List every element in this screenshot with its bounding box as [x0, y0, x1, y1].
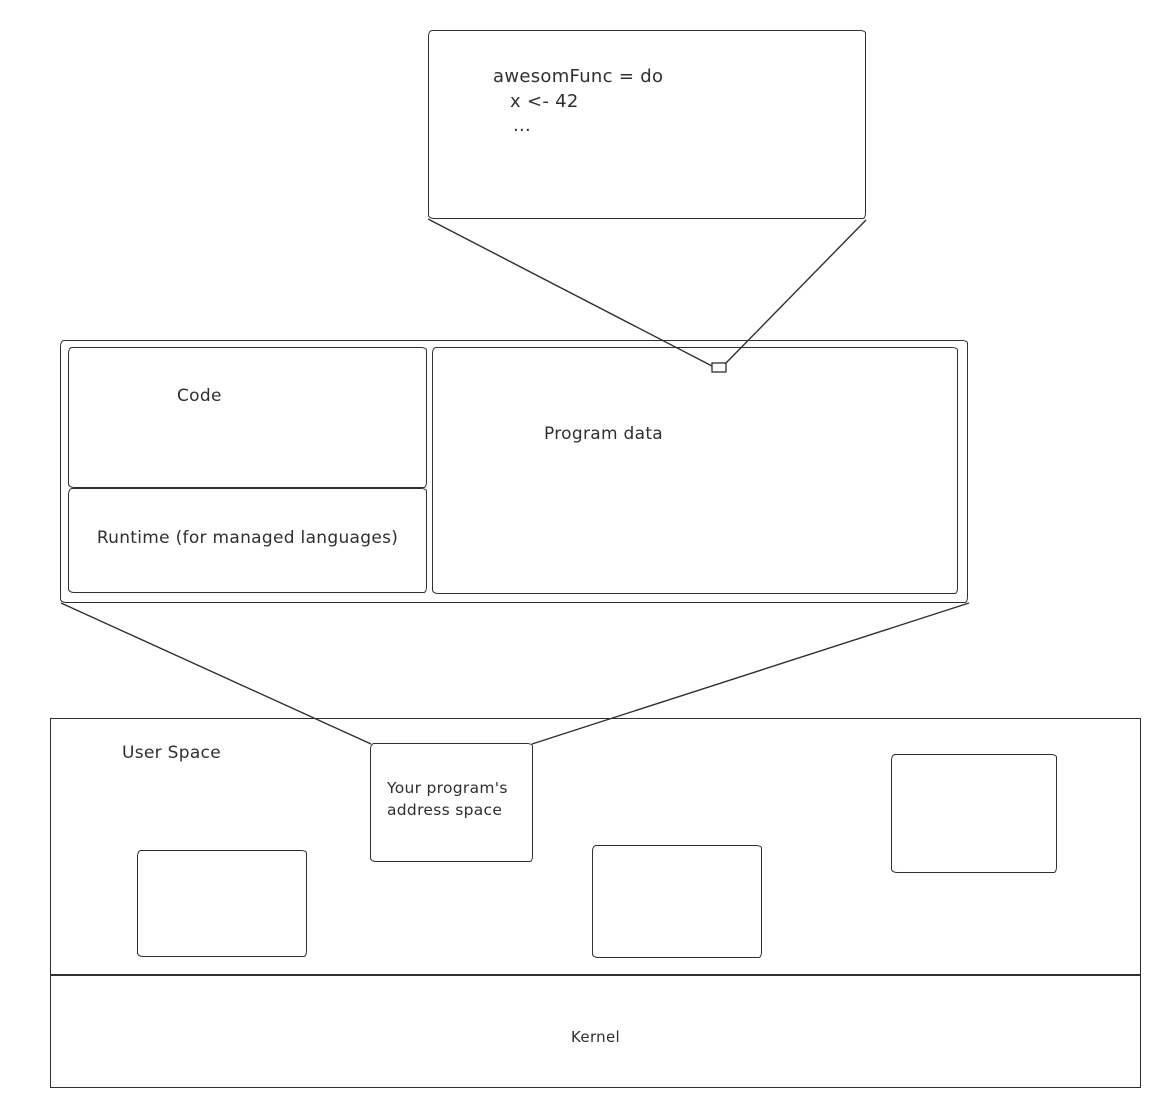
program-data-section-label: Program data: [544, 424, 663, 444]
code-snippet-line-2: x <- 42: [510, 89, 579, 114]
kernel-box: Kernel: [50, 975, 1141, 1088]
code-section-box: Code: [68, 347, 427, 488]
runtime-section-label: Runtime (for managed languages): [69, 528, 426, 548]
kernel-label: Kernel: [51, 1028, 1140, 1046]
code-section-label: Code: [177, 386, 222, 406]
other-process-box-middle: [592, 845, 762, 958]
user-space-label: User Space: [122, 743, 221, 763]
your-program-address-space-box: Your program's address space: [370, 743, 533, 862]
code-snippet-line-3: ...: [513, 113, 531, 138]
your-program-address-space-label-line-1: Your program's: [387, 779, 508, 797]
code-snippet-line-1: awesomFunc = do: [493, 64, 663, 89]
runtime-section-box: Runtime (for managed languages): [68, 488, 427, 593]
code-snippet-box: awesomFunc = do x <- 42 ...: [428, 30, 866, 219]
your-program-address-space-label-line-2: address space: [387, 801, 502, 819]
other-process-box-right: [891, 754, 1057, 873]
other-process-box-left: [137, 850, 307, 957]
program-data-section-box: Program data: [432, 347, 958, 594]
diagram-canvas: awesomFunc = do x <- 42 ... Code Runtime…: [0, 0, 1167, 1114]
